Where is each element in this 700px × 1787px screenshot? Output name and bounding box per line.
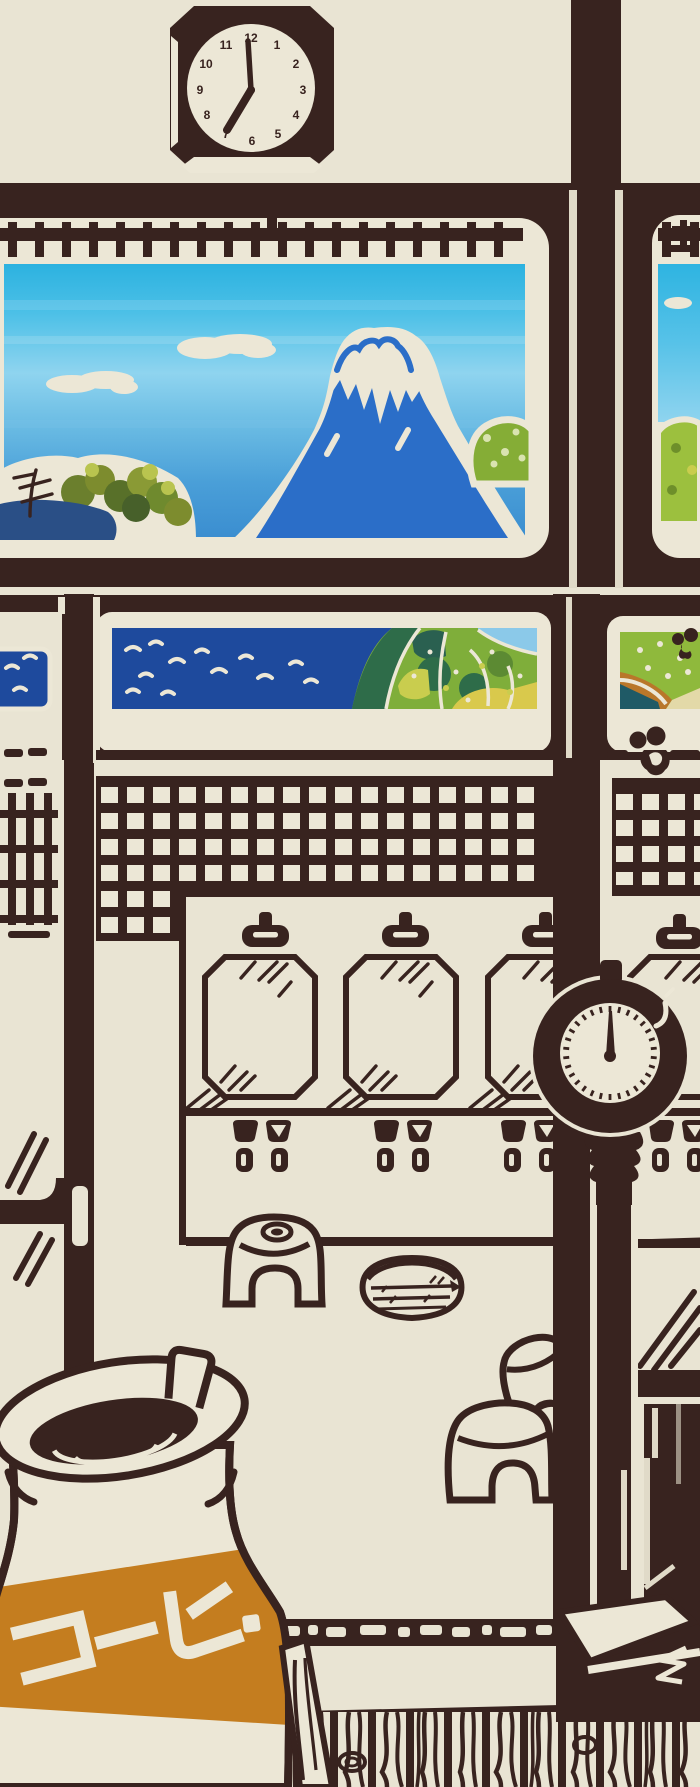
svg-text:5: 5: [275, 127, 282, 141]
svg-text:8: 8: [204, 108, 211, 122]
svg-text:1: 1: [274, 38, 281, 52]
svg-text:10: 10: [199, 57, 213, 71]
svg-text:9: 9: [197, 83, 204, 97]
svg-text:6: 6: [249, 134, 256, 148]
svg-text:4: 4: [293, 108, 300, 122]
svg-text:3: 3: [300, 83, 307, 97]
svg-text:11: 11: [220, 38, 233, 52]
svg-text:2: 2: [293, 57, 300, 71]
